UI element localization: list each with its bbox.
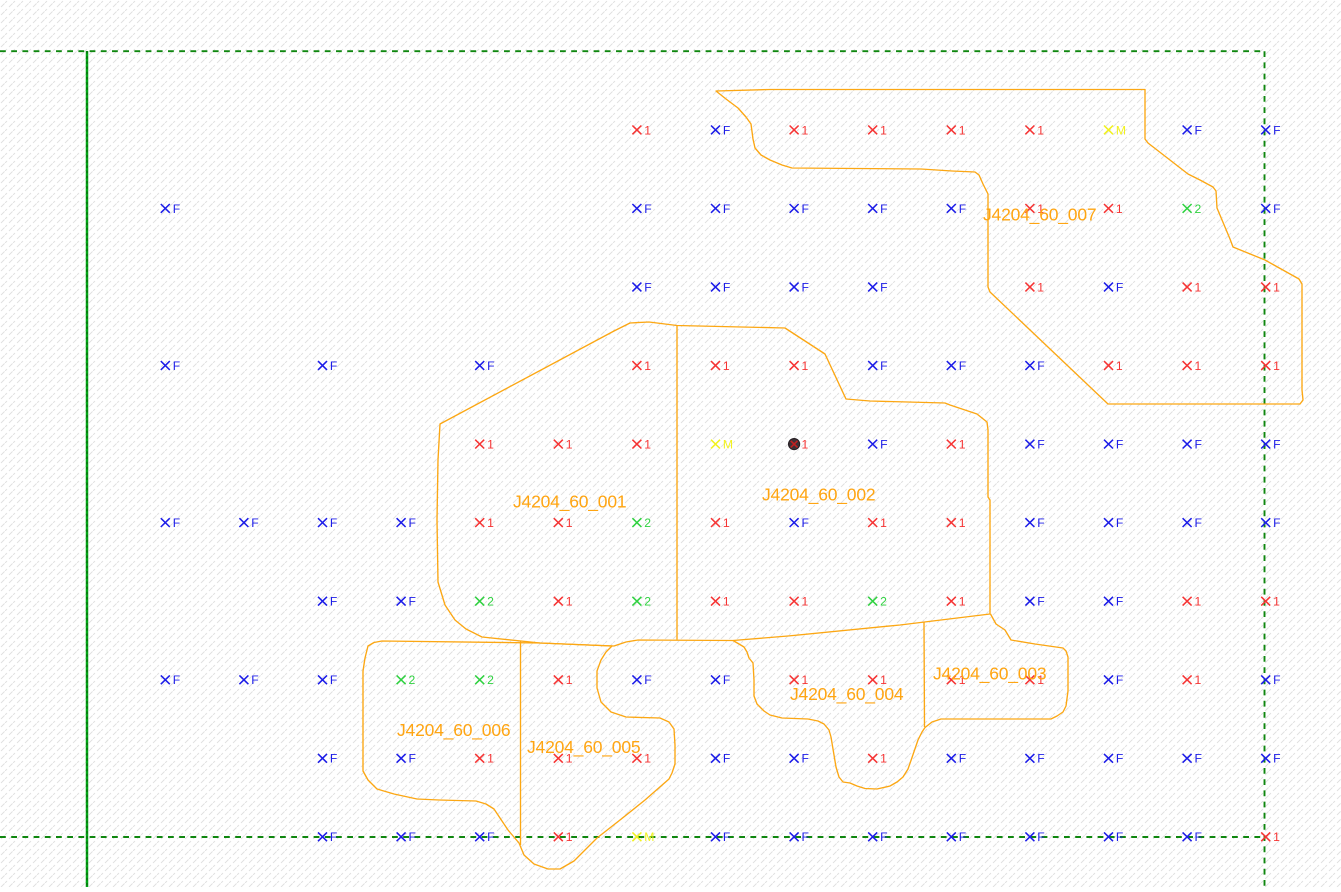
svg-text:J4204_60_007: J4204_60_007 [983,205,1096,226]
svg-text:J4204_60_005: J4204_60_005 [527,737,640,758]
svg-text:J4204_60_003: J4204_60_003 [933,664,1046,685]
svg-text:J4204_60_001: J4204_60_001 [513,492,626,513]
svg-text:J4204_60_004: J4204_60_004 [790,684,904,705]
svg-text:J4204_60_006: J4204_60_006 [397,720,510,741]
svg-text:J4204_60_002: J4204_60_002 [762,485,875,506]
